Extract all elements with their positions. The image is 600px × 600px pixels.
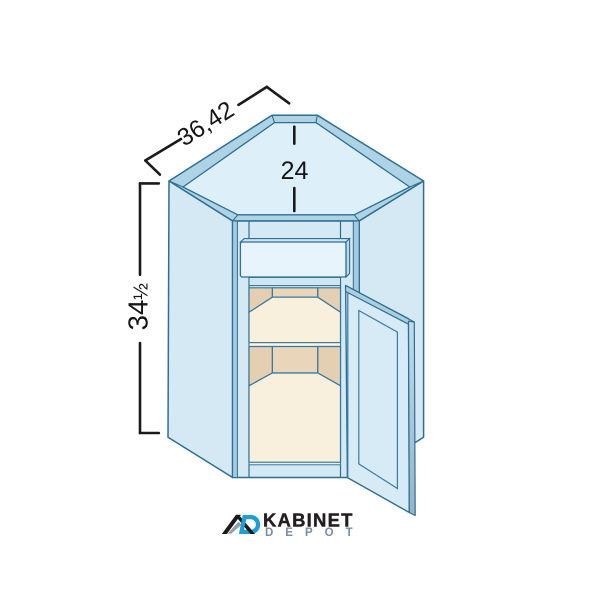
- svg-text:24: 24: [281, 157, 309, 185]
- svg-text:DEPOT: DEPOT: [265, 527, 365, 539]
